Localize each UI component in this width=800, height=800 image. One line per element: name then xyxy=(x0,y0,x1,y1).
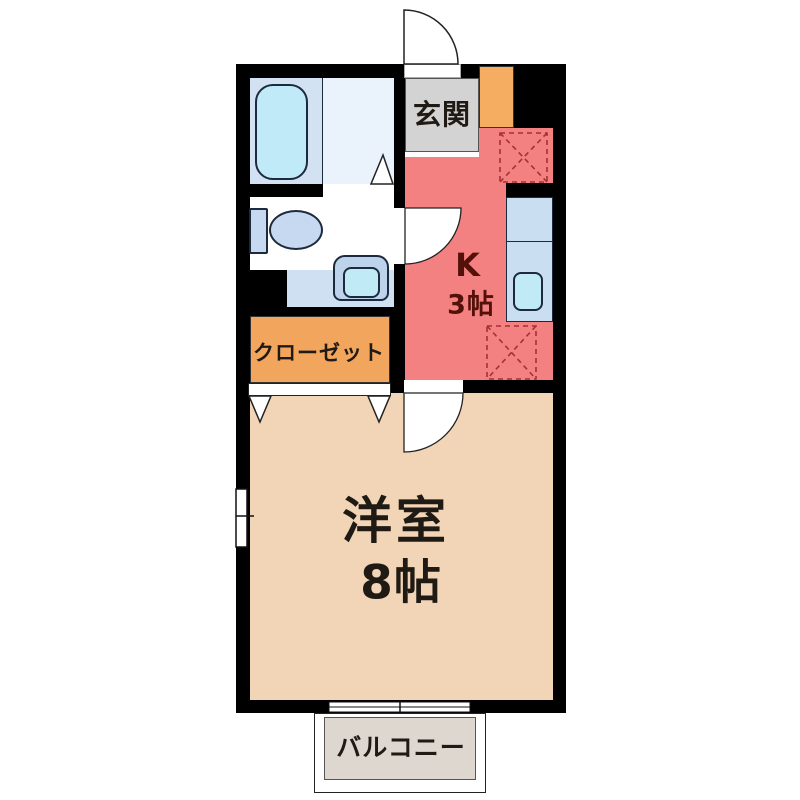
bathroom-floor-wash-side xyxy=(322,78,394,184)
closet-label: クローゼット xyxy=(253,337,385,367)
toilet-bowl xyxy=(269,210,323,250)
washroom-door-opening xyxy=(394,208,405,264)
balcony-label: バルコニー xyxy=(336,728,466,764)
western-room-label: 洋室 xyxy=(342,481,450,553)
western-room-size-label: 8帖 xyxy=(360,544,442,613)
toilet-tank xyxy=(249,208,268,254)
counter-wall-stub xyxy=(506,183,553,197)
washbasin-bowl xyxy=(343,267,380,298)
entrance-label: 玄関 xyxy=(413,93,471,133)
bathroom-door-threshold xyxy=(323,184,394,197)
kitchen-label: K xyxy=(455,246,481,284)
closet-door-track xyxy=(248,383,391,396)
entrance-door-threshold xyxy=(404,64,461,78)
kitchen-sink xyxy=(513,272,543,311)
kitchen-size-label: 3帖 xyxy=(447,283,495,322)
counter-divider xyxy=(507,241,552,242)
bathtub xyxy=(255,84,308,180)
kitchen-door-threshold xyxy=(404,380,463,393)
shoe-cabinet xyxy=(479,66,514,128)
entrance-door-swing xyxy=(404,10,458,64)
floor-plan: 玄関 K 3帖 クローゼット 洋室 8帖 バルコニー xyxy=(0,0,800,800)
